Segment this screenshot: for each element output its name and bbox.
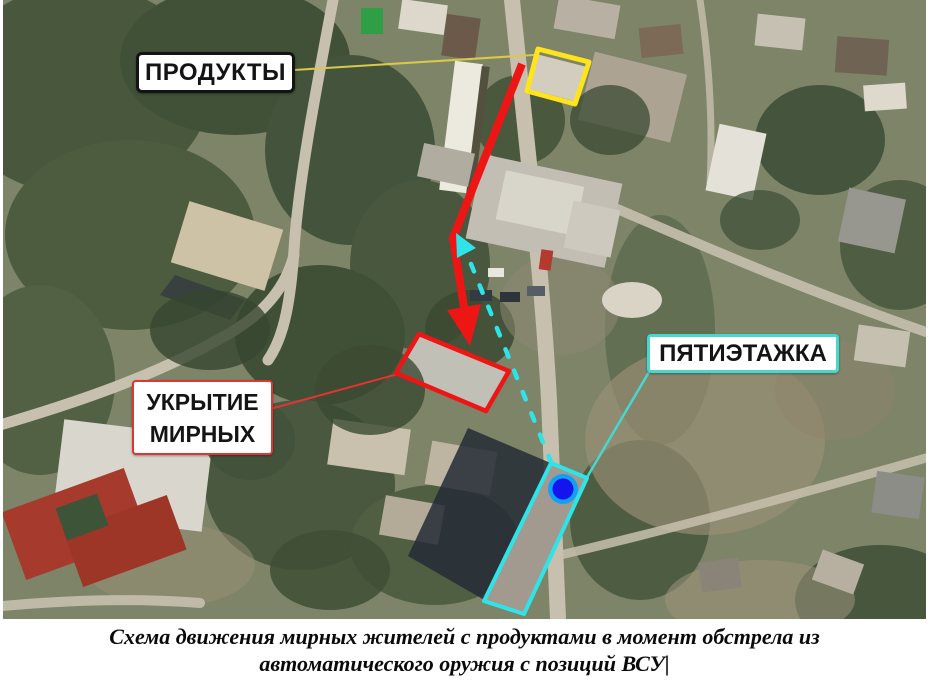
five-story-label-text: ПЯТИЭТАЖКА <box>659 340 827 368</box>
caption-line-1: Схема движения мирных жителей с продукта… <box>109 623 819 650</box>
products-label: ПРОДУКТЫ <box>136 52 295 93</box>
five-story-connector-line <box>586 372 649 479</box>
shelter-label-text: УКРЫТИЕ МИРНЫХ <box>146 386 258 450</box>
caption-line-2: автоматического оружия с позиций ВСУ| <box>259 650 669 677</box>
route-dashed-cyan-line <box>471 264 551 462</box>
annotated-satellite-figure: ПРОДУКТЫ УКРЫТИЕ МИРНЫХ ПЯТИЭТАЖКА Схема… <box>0 0 929 681</box>
route-arrow-red-head <box>447 304 481 346</box>
route-arrow-red-shaft <box>453 64 522 307</box>
products-connector-line <box>294 55 534 70</box>
shelter-label-line2: МИРНЫХ <box>146 418 258 450</box>
products-label-text: ПРОДУКТЫ <box>145 59 286 87</box>
satellite-map: ПРОДУКТЫ УКРЫТИЕ МИРНЫХ ПЯТИЭТАЖКА <box>3 0 926 619</box>
five-story-label: ПЯТИЭТАЖКА <box>647 334 839 373</box>
shelter-building-outline <box>396 334 509 411</box>
products-highlight-box <box>527 49 589 104</box>
blue-dot-marker <box>553 479 574 500</box>
route-dashed-cyan-arrowhead <box>456 233 476 258</box>
figure-caption: Схема движения мирных жителей с продукта… <box>0 619 929 681</box>
shelter-label: УКРЫТИЕ МИРНЫХ <box>132 380 273 455</box>
shelter-label-line1: УКРЫТИЕ <box>146 386 258 418</box>
shelter-connector-line <box>270 374 398 409</box>
